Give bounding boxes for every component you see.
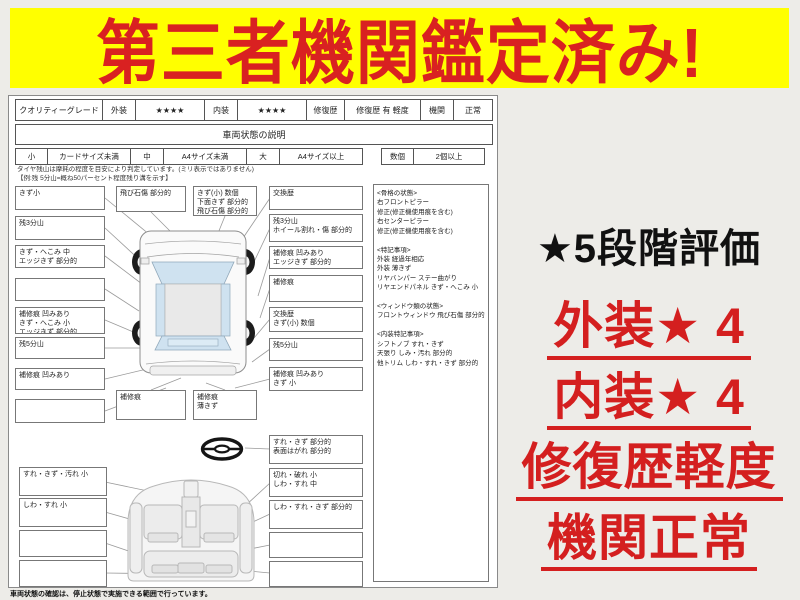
- interior-note-box: すれ・きず 部分的 表面はがれ 部分的: [269, 435, 363, 464]
- exterior-note-box: 飛び石傷 部分的: [116, 186, 186, 212]
- interior-note-box: 切れ・破れ 小 しわ・すれ 中: [269, 468, 363, 497]
- rating-exterior: 外装★ 4: [500, 300, 798, 360]
- exterior-note-box: 残3分山 ホイール割れ・傷 部分的: [269, 214, 363, 242]
- remarks-box: <骨格の状態> 右フロントピラー 修正(修正機使用痕を含む) 右センターピラー …: [373, 184, 489, 582]
- exterior-note-box: きず(小) 数個 下面きず 部分的 飛び石傷 部分的: [193, 186, 257, 216]
- exterior-note-box: 補修痕: [269, 275, 363, 302]
- interior-note-box: [19, 530, 107, 557]
- interior-note-box: [19, 560, 107, 587]
- exterior-note-box: 補修痕: [116, 390, 186, 420]
- interior-note-box: しわ・すれ・きず 部分的: [269, 500, 363, 529]
- interior-note-box: すれ・きず・汚れ 小: [19, 467, 107, 496]
- vehicle-condition-sheet: クオリティーグレード 外装 ★★★★ 内装 ★★★★ 修復歴 修復歴 有 軽度 …: [8, 95, 498, 588]
- rating-scale-title: ★5段階評価: [500, 216, 798, 274]
- interior-note-box: しわ・すれ 小: [19, 498, 107, 527]
- banner-text: 第三者機関鑑定済み!: [96, 0, 703, 98]
- interior-note-box: [269, 561, 363, 587]
- steering-wheel-icon: [199, 436, 245, 462]
- rating-annotations: ★5段階評価 外装★ 4 内装★ 4 修復歴軽度 機関正常: [500, 216, 798, 582]
- exterior-note-box: 交換歴: [269, 186, 363, 210]
- car-top-view-diagram: [126, 226, 261, 386]
- footer-note: 車両状態の確認は、停止状態で実施できる範囲で行っています。: [10, 589, 212, 599]
- rating-engine: 機関正常: [500, 512, 798, 572]
- exterior-note-box: 補修痕 凹みあり きず・へこみ 小 エッジきず 部分的: [15, 307, 105, 334]
- rating-interior: 内装★ 4: [500, 371, 798, 431]
- exterior-note-box: 残3分山: [15, 216, 105, 240]
- exterior-note-box: 残5分山: [15, 337, 105, 359]
- exterior-note-box: 交換歴 きず(小) 数個: [269, 307, 363, 332]
- appraisal-banner: 第三者機関鑑定済み!: [10, 8, 789, 88]
- exterior-note-box: きず小: [15, 186, 105, 210]
- exterior-note-box: [15, 278, 105, 301]
- exterior-note-box: 補修痕 凹みあり きず 小: [269, 367, 363, 391]
- cabin-interior-diagram: [116, 469, 266, 587]
- rating-repair-history: 修復歴軽度: [500, 441, 798, 501]
- exterior-note-box: [15, 399, 105, 423]
- exterior-note-box: きず・へこみ 中 エッジきず 部分的: [15, 245, 105, 268]
- exterior-note-box: 残5分山: [269, 338, 363, 361]
- exterior-note-box: 補修痕 凹みあり: [15, 368, 105, 390]
- exterior-note-box: 補修痕 凹みあり エッジきず 部分的: [269, 246, 363, 269]
- interior-note-box: [269, 532, 363, 558]
- exterior-note-box: 補修痕 薄きず: [193, 390, 257, 420]
